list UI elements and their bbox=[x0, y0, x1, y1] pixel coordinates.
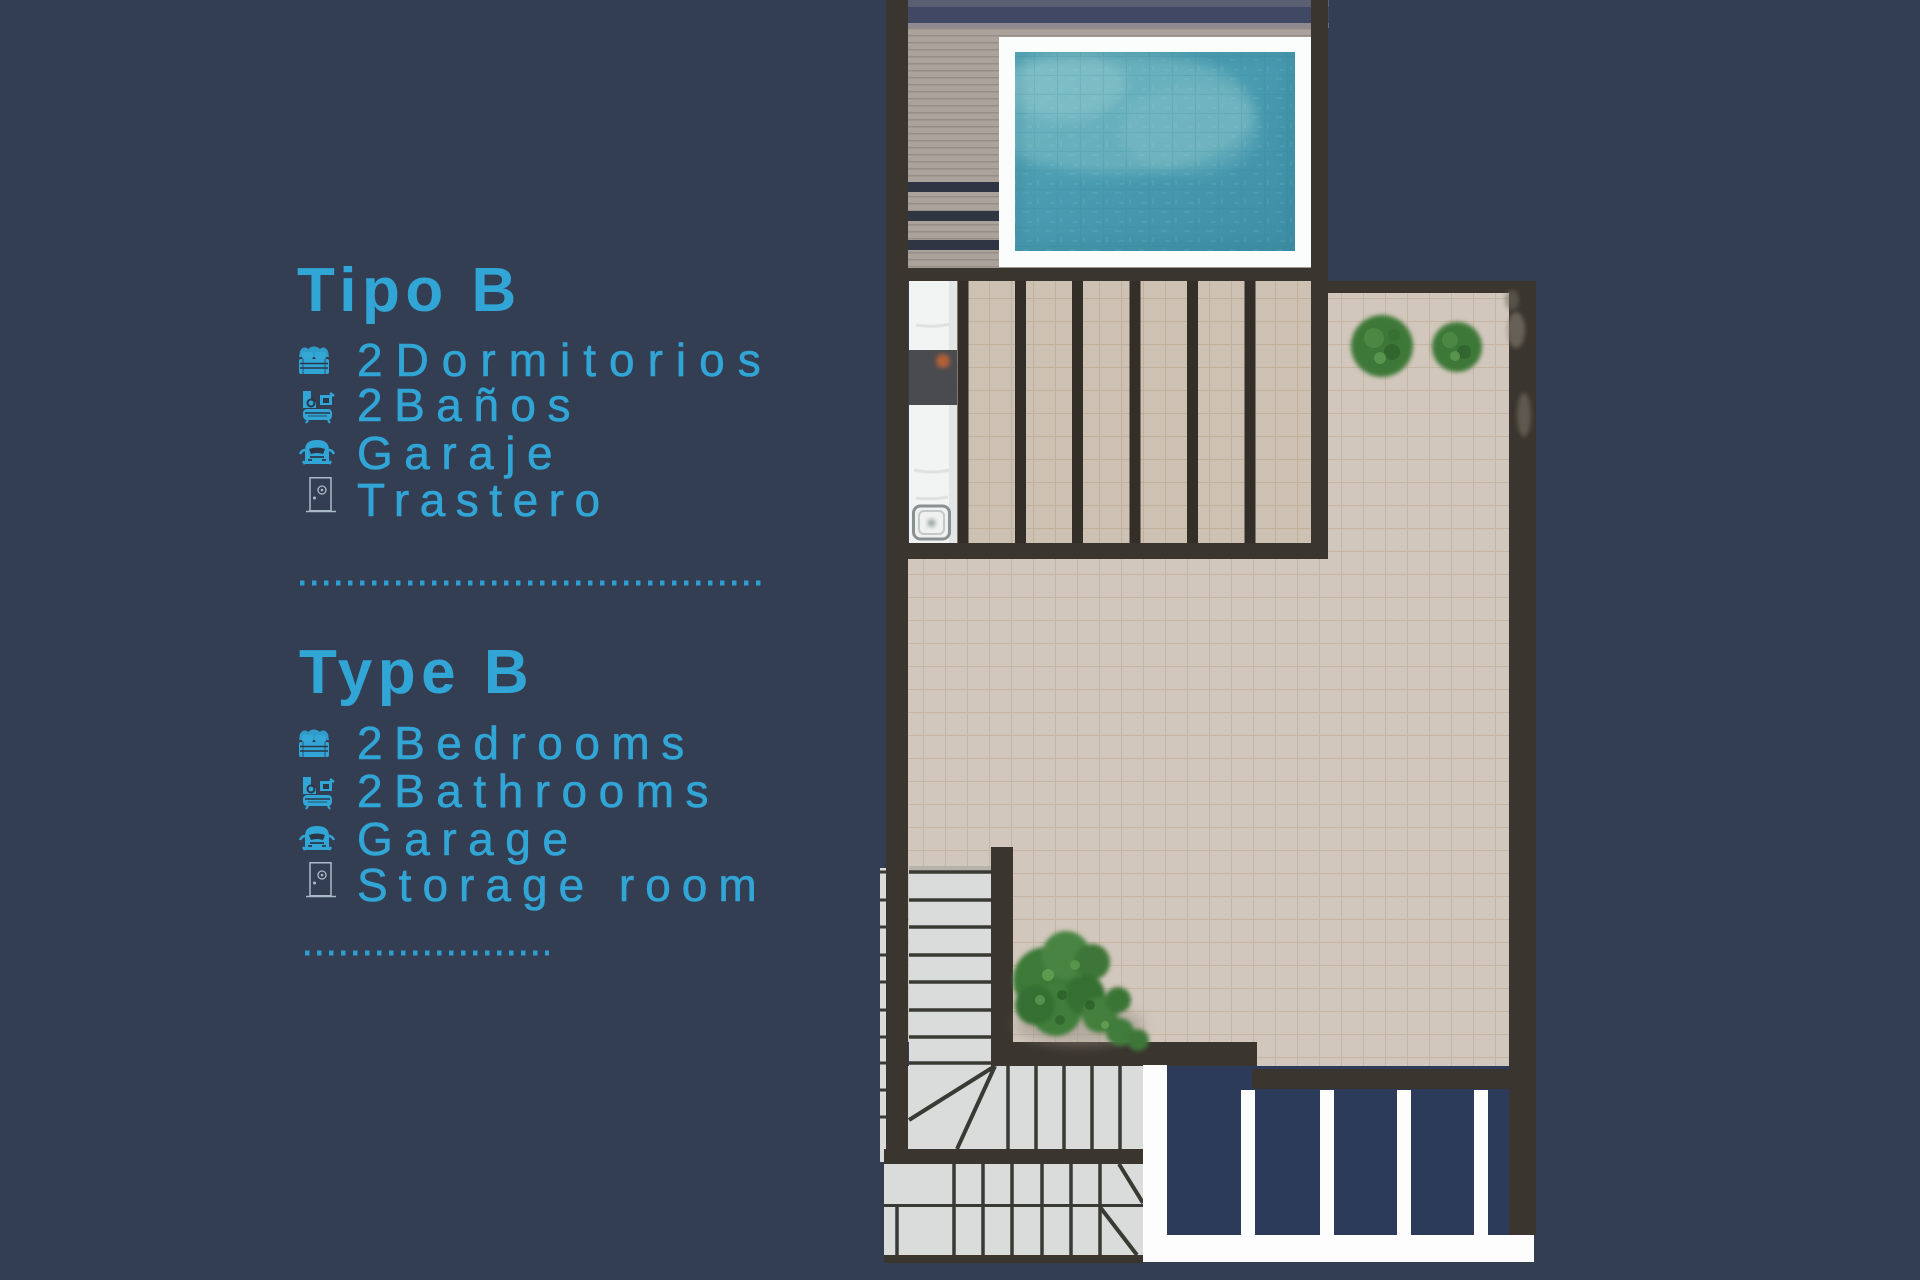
svg-text:2Bedrooms: 2Bedrooms bbox=[357, 717, 696, 769]
svg-text:Type B: Type B bbox=[299, 638, 534, 707]
svg-text:2Baños: 2Baños bbox=[357, 379, 582, 431]
svg-text:Trastero: Trastero bbox=[357, 474, 611, 526]
svg-text:Garage: Garage bbox=[357, 813, 579, 865]
svg-text:2Bathrooms: 2Bathrooms bbox=[357, 765, 720, 817]
svg-text:Storage room: Storage room bbox=[357, 859, 768, 911]
svg-text:Garaje: Garaje bbox=[357, 427, 564, 479]
svg-text:Tipo B: Tipo B bbox=[297, 256, 522, 325]
